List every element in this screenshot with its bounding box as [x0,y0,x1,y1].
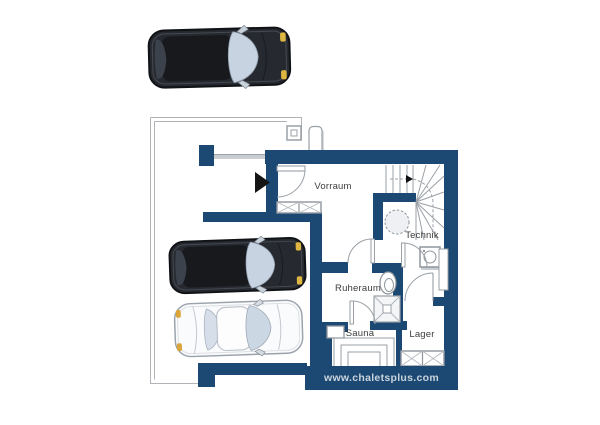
beam-line [214,155,266,159]
shower [374,296,400,322]
entry-door [277,166,305,197]
counter [439,249,448,290]
wall-top [265,150,458,164]
vorraum-windows [277,202,321,213]
floor-plan-image: Vorraum Technik Ruheraum Sauna Lager www… [0,0,600,425]
washing-machine [420,247,440,270]
footer-bar: www.chaletsplus.com [305,366,458,390]
room-label-sauna: Sauna [336,329,384,339]
wall-technik-stub [433,297,444,306]
door-lager [405,273,433,301]
wall-pillar [199,145,214,166]
wall-mid-left [322,262,348,273]
sauna-benches [334,338,394,368]
wall-stair-v [373,193,383,240]
car-sedan-bottom [174,298,303,359]
floor-plan-graphic [0,0,600,425]
car-suv-middle [169,235,306,297]
room-label-technik: Technik [398,231,446,241]
garage-corner-box [287,126,301,140]
stair-direction-arrow-icon [406,175,413,183]
wall-left-interior [310,212,322,368]
door-sauna [350,301,375,324]
room-label-ruheraum: Ruheraum [333,284,383,294]
lager-windows [401,351,444,366]
room-label-vorraum: Vorraum [305,182,361,192]
wall-garage-bottom-pillar [198,363,215,387]
wall-garage-bottom-bar [215,363,307,375]
footer-url: www.chaletsplus.com [324,372,439,384]
car-suv-top [148,24,290,91]
room-label-lager: Lager [398,330,446,340]
door-ruheraum [348,239,375,263]
